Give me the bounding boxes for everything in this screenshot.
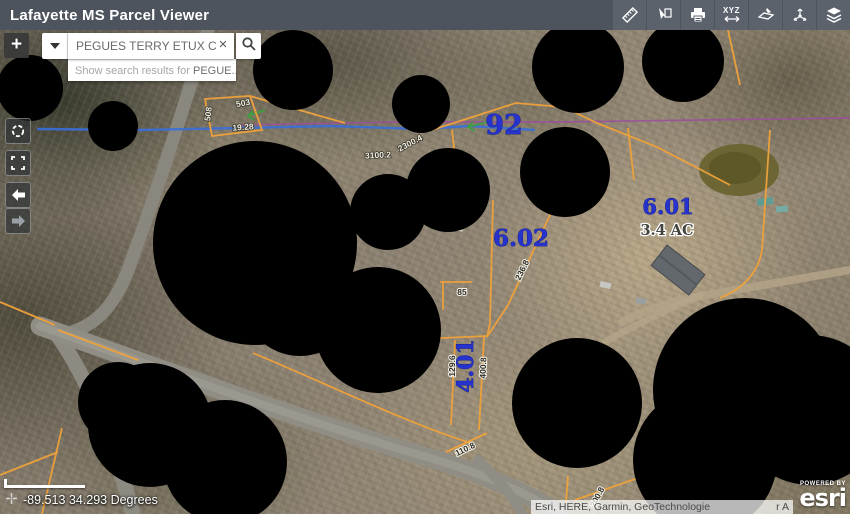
app-header: Lafayette MS Parcel Viewer XYZ (0, 0, 850, 30)
search-input-wrap: × (68, 33, 234, 59)
search-bar: × (42, 33, 261, 59)
page-title: Lafayette MS Parcel Viewer (0, 7, 209, 24)
locate-button[interactable] (5, 118, 31, 144)
map-attribution: Esri, HERE, Garmin, GeoTechnologie r A (531, 500, 793, 514)
measure-tool-button[interactable] (613, 0, 646, 30)
back-button[interactable] (5, 182, 31, 208)
print-tool-button[interactable] (681, 0, 714, 30)
map-overlay: 508 503 19.28 2300.4 3100.2 173.8 236.8 … (0, 30, 850, 514)
clear-search-icon[interactable]: × (215, 37, 231, 53)
attribution-fragment: r A (776, 500, 789, 514)
forward-button[interactable] (5, 208, 31, 234)
fullscreen-icon (10, 155, 26, 171)
svg-text:2300.4: 2300.4 (396, 132, 424, 153)
search-icon (241, 36, 257, 57)
svg-text:110.8: 110.8 (453, 440, 476, 458)
parcel-viewer-app: 508 503 19.28 2300.4 3100.2 173.8 236.8 … (0, 0, 850, 514)
svg-text:19.28: 19.28 (232, 121, 254, 132)
svg-text:85: 85 (457, 287, 467, 297)
attribution-text: Esri, HERE, Garmin, GeoTechnologie (535, 500, 710, 514)
header-toolbar: XYZ (612, 0, 850, 30)
svg-text:4.01: 4.01 (453, 339, 479, 393)
chevron-down-icon (50, 43, 60, 49)
svg-text:3100.2: 3100.2 (365, 149, 392, 160)
coordinate-readout: -89.513 34.293 Degrees (5, 492, 158, 508)
search-source-dropdown[interactable] (42, 33, 68, 59)
svg-text:3.4 AC: 3.4 AC (640, 222, 693, 239)
svg-text:400.8: 400.8 (478, 357, 489, 379)
suggestion-prefix: Show search results for (75, 65, 193, 77)
zoom-in-button[interactable]: + (4, 33, 29, 58)
svg-text:503: 503 (235, 97, 251, 109)
forward-arrow-icon (10, 214, 27, 228)
fullscreen-button[interactable] (5, 150, 31, 176)
printer-icon (689, 6, 707, 24)
svg-text:6.02: 6.02 (493, 225, 549, 252)
share-tool-button[interactable] (783, 0, 816, 30)
back-arrow-icon (10, 188, 27, 202)
xyz-icon: XYZ (723, 7, 740, 15)
search-input[interactable] (68, 33, 234, 59)
svg-text:6.01: 6.01 (642, 194, 693, 219)
xyz-coordinates-tool-button[interactable]: XYZ (715, 0, 748, 30)
svg-text:508: 508 (202, 106, 214, 122)
locate-icon (10, 123, 26, 139)
scale-bar (4, 479, 85, 488)
esri-logo: POWERED BY esri (799, 481, 846, 511)
ruler-icon (621, 6, 639, 24)
draw-icon (757, 6, 775, 24)
suggestion-query: PEGUE... (193, 65, 236, 77)
search-button[interactable] (236, 33, 261, 59)
coordinate-text: -89.513 34.293 Degrees (23, 493, 158, 507)
layers-tool-button[interactable] (817, 0, 850, 30)
draw-tool-button[interactable] (749, 0, 782, 30)
cursor-select-icon (655, 6, 673, 24)
esri-brand-text: esri (799, 484, 846, 512)
svg-text:236.8: 236.8 (513, 258, 531, 282)
xyz-arrows-icon (722, 15, 742, 23)
layers-icon (825, 6, 843, 24)
search-suggestion[interactable]: Show search results for PEGUE... (68, 59, 236, 81)
select-tool-button[interactable] (647, 0, 680, 30)
share-icon (791, 6, 809, 24)
svg-text:92: 92 (485, 110, 523, 141)
crosshair-icon (5, 492, 18, 508)
